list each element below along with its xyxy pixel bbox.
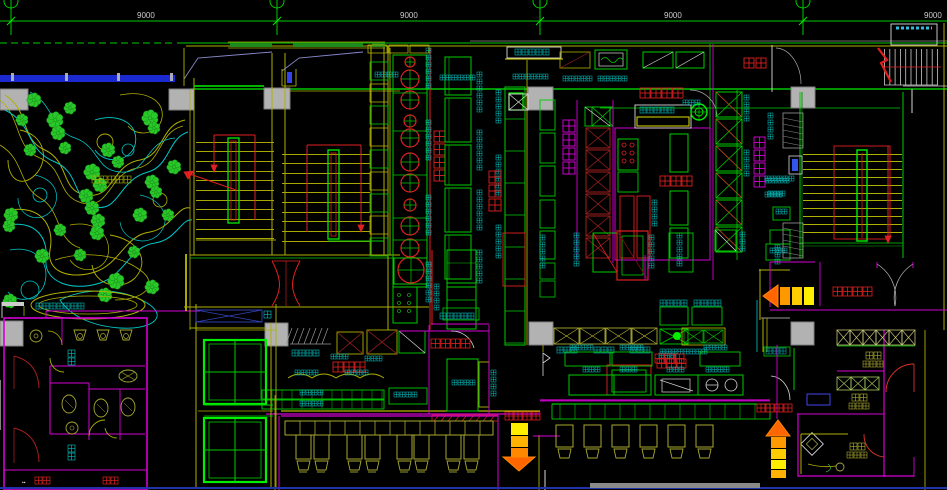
svg-text:▪▪: ▪▪ — [22, 480, 26, 486]
svg-text:9000: 9000 — [400, 11, 418, 20]
svg-text:9000: 9000 — [137, 11, 155, 20]
svg-text:9000: 9000 — [664, 11, 682, 20]
svg-text:9000: 9000 — [924, 11, 942, 20]
